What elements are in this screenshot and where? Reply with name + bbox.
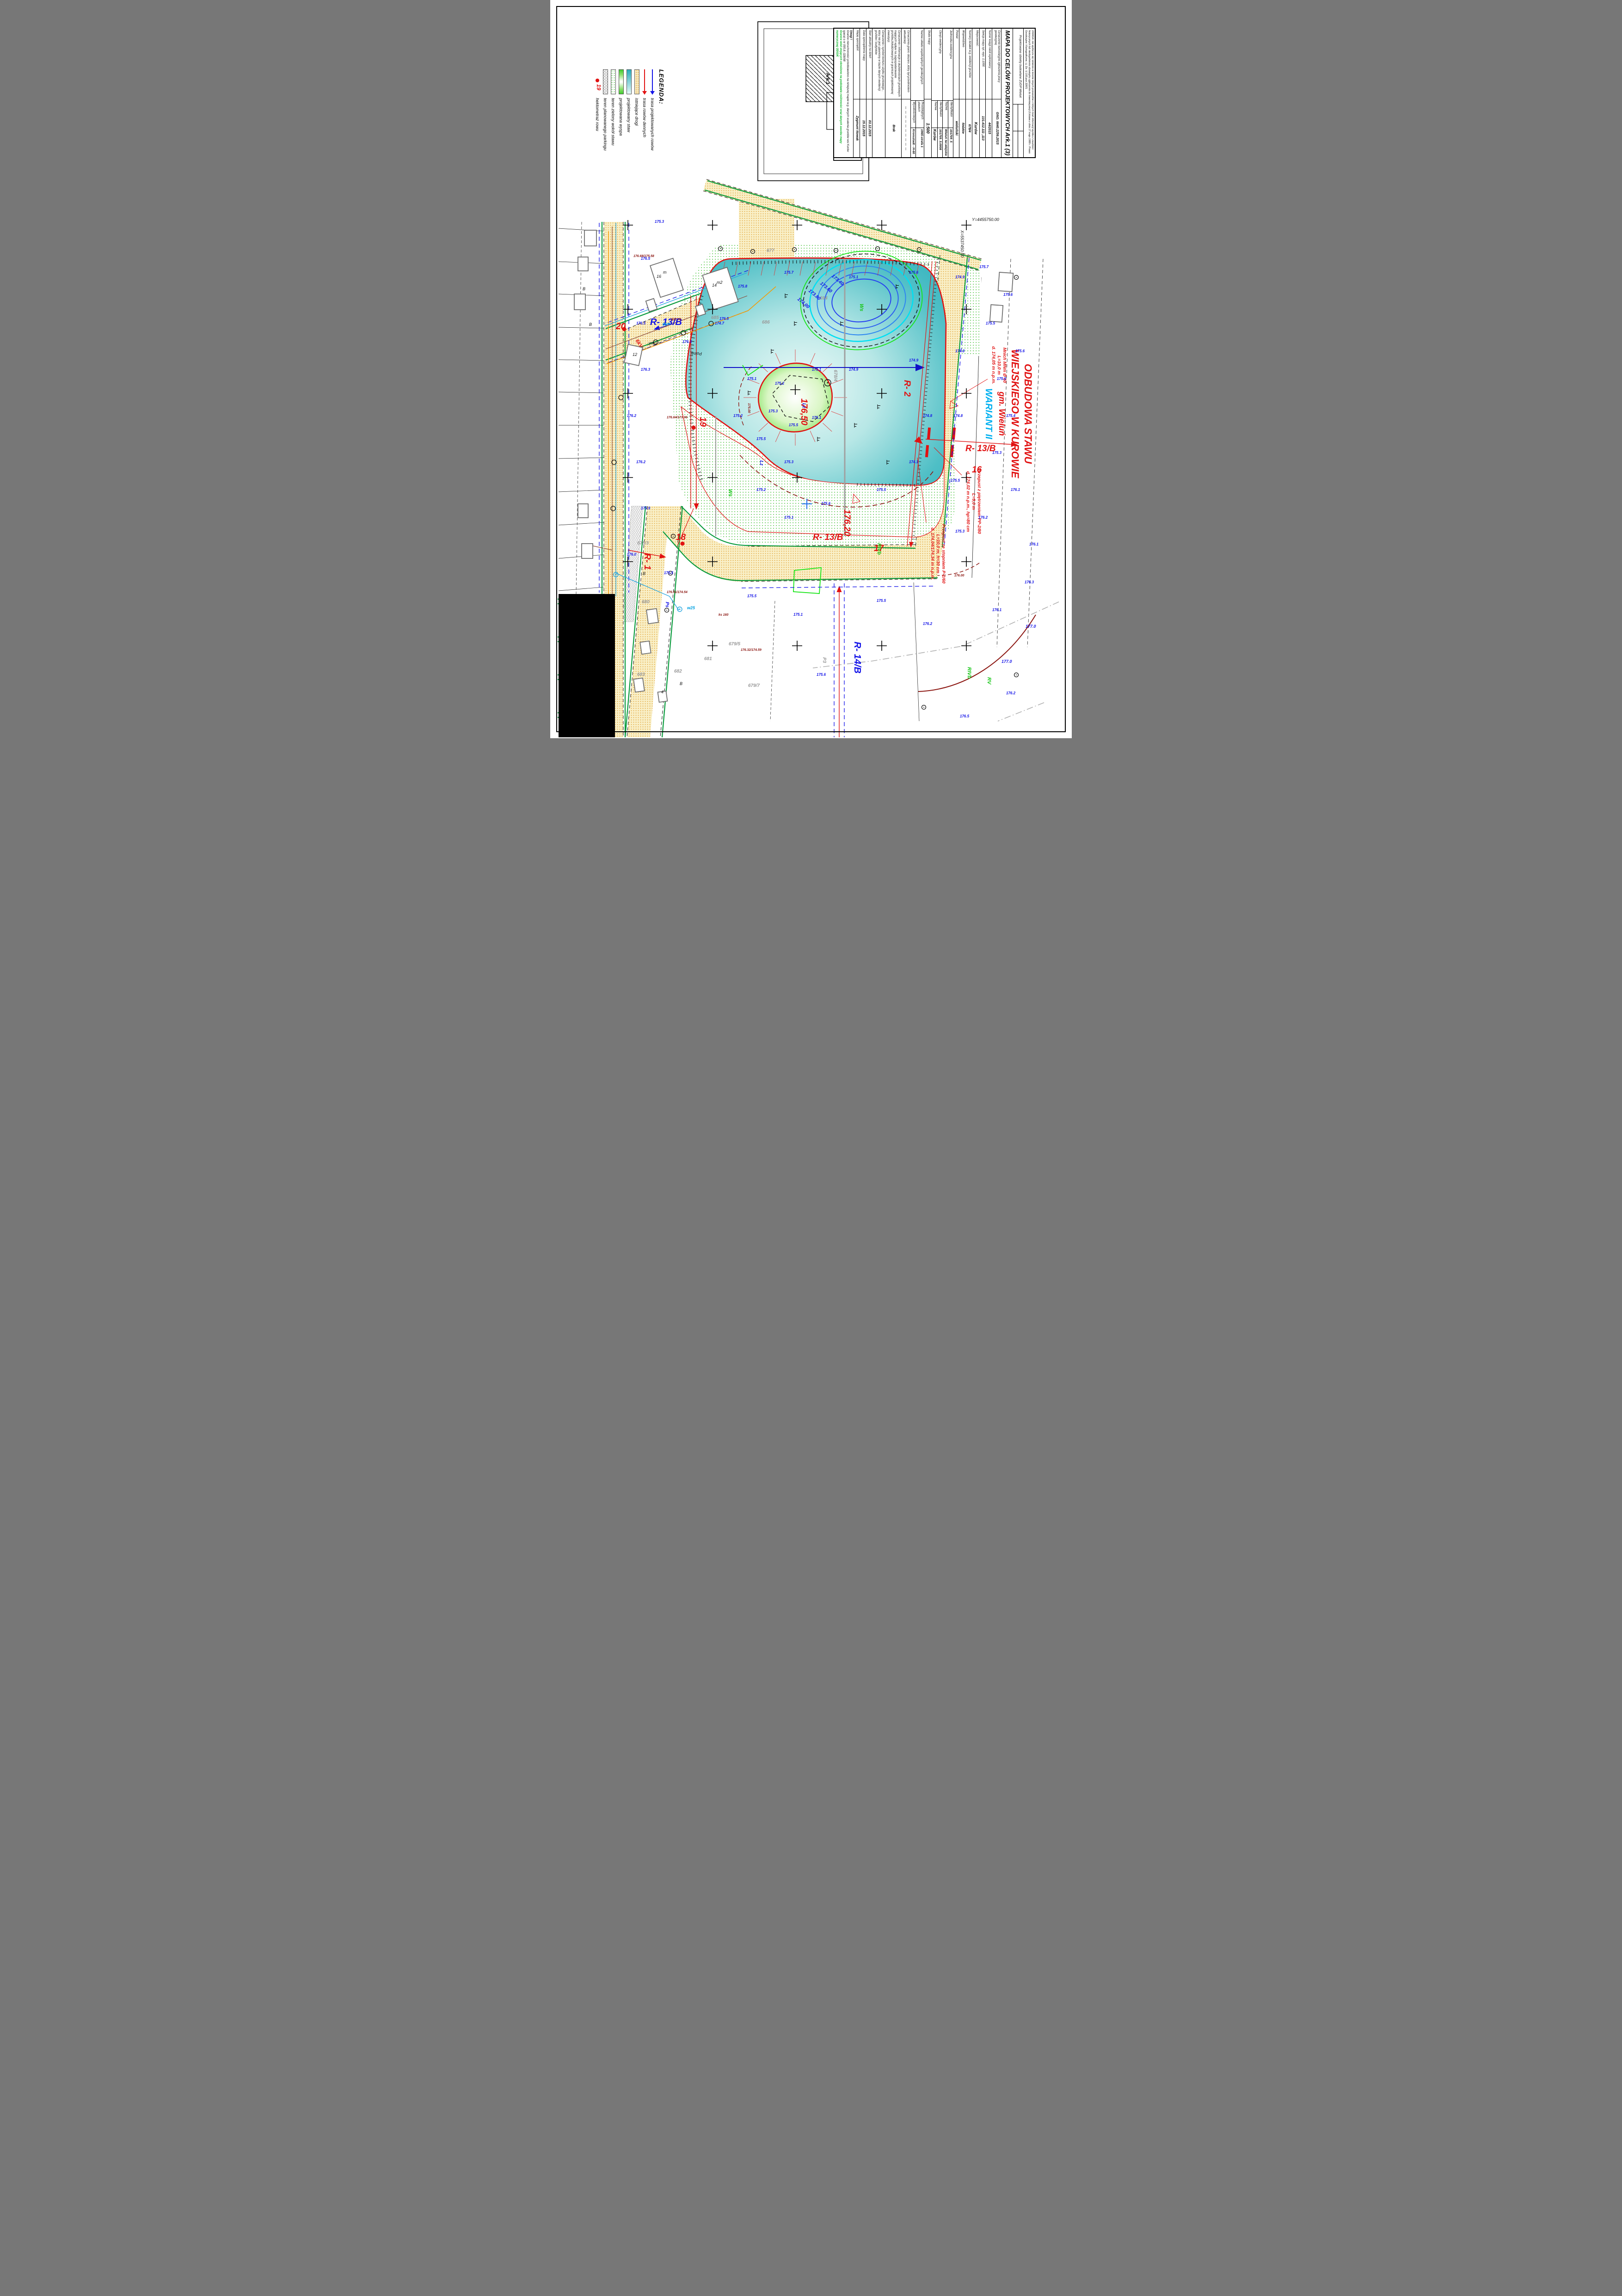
field-label: Stan aktualny na dzień <box>866 29 872 99</box>
field-value: 44/2015 <box>986 99 992 157</box>
map-label: B <box>583 287 585 291</box>
spot-elevation: 175.2 <box>775 381 785 386</box>
map-label: 176,20 <box>842 509 852 537</box>
map-label: 18 <box>676 533 686 542</box>
redacted-area <box>559 594 615 737</box>
map-label: B <box>643 571 645 576</box>
spot-elevation: 175.3 <box>655 220 664 224</box>
field-value: wieluński <box>953 99 959 157</box>
spot-elevation: 176.5 <box>960 714 970 718</box>
map-label: 16 <box>657 274 661 279</box>
spot-elevation: 174.8 <box>955 349 965 353</box>
field-label: Numer księgi robót wykonawcy <box>986 29 992 99</box>
field-value: 678/4 <box>966 99 972 157</box>
field-label: Miejscowość: <box>972 29 979 99</box>
subval: 1965-strefa 1 <box>916 128 924 157</box>
map-label: 175.00 <box>747 403 750 413</box>
project-title-line1: ODBUDOWA STAWU <box>1022 364 1034 464</box>
spot-elevation: 175.5 <box>664 571 674 575</box>
map-label: 678/3 <box>637 541 649 546</box>
update-boundary-symbol <box>902 99 910 157</box>
spot-elevation: 175.5 <box>756 437 766 441</box>
field-value: 03.12.2015 <box>866 99 872 157</box>
subkey: Identyfikator <box>948 101 953 128</box>
tree-dot <box>836 250 836 251</box>
spot-elevation: 175.2 <box>756 488 766 492</box>
map-label: 177.0 <box>1026 624 1036 629</box>
legend-item-label: hektometraż rowu <box>596 98 600 131</box>
survey-grid-cross <box>623 388 633 398</box>
spot-elevation: 176.2 <box>627 414 637 418</box>
map-label: 176.00 <box>954 574 965 577</box>
map-label: w90 <box>663 322 670 326</box>
subkey: Identyfikator <box>938 101 942 128</box>
planned-objects-label: Projektowane obiekty budowlane ZUDP Wiel… <box>1013 29 1023 104</box>
map-label: 19 <box>698 417 707 427</box>
hektometer-dot <box>692 426 696 430</box>
map-label: RIVb <box>966 667 972 679</box>
tree-dot <box>752 251 753 252</box>
legend-symbol-parking-icon <box>603 69 608 94</box>
survey-grid-cross <box>623 220 633 230</box>
spot-elevation: 175.6 <box>817 673 826 677</box>
map-label: 685 <box>711 315 719 320</box>
map-label: 176.64/173.96 <box>667 416 688 419</box>
legend-symbol-hekto-icon: 19 <box>595 69 600 94</box>
field-value: GNO. 6640.2256.2015 <box>992 99 1001 157</box>
spot-elevation: 176.2 <box>636 460 646 464</box>
remarks-text: Granice nieruchomości przedstawiono na n… <box>842 30 849 152</box>
legend-symbol-roads-icon <box>634 69 639 94</box>
spot-elevation: 176.2 <box>978 515 988 520</box>
landscape-sheet: Ark.1 Ark.2 Ark.3 ODBUDOWA STAWU WIEJSKI… <box>550 0 1072 738</box>
spot-elevation: 175.6 <box>1015 349 1025 353</box>
field-label: Oznaczenia granic obszaru ,który był prz… <box>902 29 910 99</box>
spot-elevation: 176.3 <box>641 367 651 372</box>
map-label: R- 14/B <box>852 642 862 673</box>
subval: Wieluń ter.wiejskie <box>943 128 948 157</box>
tree-dot <box>666 610 667 611</box>
legend-item-label: teren planowanego parkingu <box>603 98 608 151</box>
spot-elevation: 175.5 <box>986 321 995 325</box>
spot-elevation: 175.3 <box>768 409 778 413</box>
tree-dot <box>720 248 721 249</box>
field-subtable: Identyfikator101709_5 NazwaWieluń ter.wi… <box>943 100 953 157</box>
field-value: 1:500 <box>924 99 931 157</box>
map-label: 177.0 <box>1001 659 1012 664</box>
survey-grid-cross <box>961 557 971 567</box>
map-label: m2 <box>717 280 723 285</box>
legend: LEGENDA: trasa projektowanych rowówtrasa… <box>594 69 665 204</box>
field-subtable: Prostokątnych płaskich1965-strefa 1 Wyso… <box>911 100 924 157</box>
spot-elevation: 175.5 <box>997 377 1007 381</box>
map-label: 680 <box>642 600 650 605</box>
legend-item-label: teren zielony wokół stawu <box>611 98 616 146</box>
map-label: 4 <box>661 690 664 694</box>
subval: 101709_5.0008 <box>938 128 942 157</box>
map-label: 176.51/174.54 <box>667 591 688 594</box>
map-label: 176,50 <box>799 398 809 426</box>
map-label: 12 <box>633 352 637 357</box>
legend-symbol-pond-icon <box>627 69 632 94</box>
spot-elevation: 175.5 <box>877 599 886 603</box>
map-label: 679/5 <box>729 642 740 647</box>
field-value: 131.412.111 ,113 <box>980 99 986 157</box>
subkey: Nazwa <box>943 101 948 128</box>
tree-dot <box>673 536 674 537</box>
map-label: 681 <box>704 656 712 661</box>
map-label: 16 <box>972 465 982 475</box>
map-label: 677 <box>767 248 774 253</box>
spot-elevation: 175.7 <box>784 270 794 275</box>
spot-elevation: 174.1 <box>909 460 919 464</box>
map-label: Ws <box>727 489 733 497</box>
legend-item: projektowana wyspa <box>617 69 625 204</box>
remarks-green-text: Granice wód stojących określono na podst… <box>836 30 842 143</box>
map-label: R- 13/B <box>965 444 996 453</box>
field-label: Sekcja mapy syt.-wys. 1:1000 <box>980 29 986 99</box>
spot-elevation: 175.1 <box>812 367 822 372</box>
legend-item-label: projektowana wyspa <box>619 98 624 136</box>
field-label: Mapę sporządził: <box>854 29 860 99</box>
map-label: 679/7 <box>748 683 760 688</box>
sheet-ark1-label: Ark.1 <box>825 72 830 84</box>
map-label: Lz <box>759 460 764 465</box>
spot-elevation: 175.6 <box>821 502 831 506</box>
map-label: B <box>589 322 592 327</box>
spot-elevation: 176.1 <box>1029 542 1039 546</box>
subval: Kronsztadt - H-60 <box>911 128 915 157</box>
spot-elevation: 175.4 <box>1006 414 1016 418</box>
map-title: MAPA DO CELÓW PROJEKTOWYCH Ark.1 (3) <box>1001 29 1013 157</box>
tree-dot <box>794 249 795 250</box>
legend-item: istniejące drogi <box>633 69 641 204</box>
tree-dot <box>877 248 878 249</box>
spot-elevation: 175.2 <box>733 414 743 418</box>
map-label: P3 <box>822 657 827 663</box>
planned-objects-grid <box>1013 104 1023 157</box>
spot-elevation: 175.1 <box>747 377 757 381</box>
hektometer-number: 19 <box>596 84 602 90</box>
map-label: Lz <box>801 403 806 408</box>
spot-elevation: 175.5 <box>951 478 960 483</box>
spot-elevation: 175.7 <box>979 265 989 269</box>
legend-item: teren zielony wokół stawu <box>609 69 617 204</box>
field-value: Brak <box>885 99 901 157</box>
map-label: ks 160 <box>719 613 729 617</box>
field-label: Oznaczenie kancelaryjne zgłoszenia pracy… <box>992 29 1001 99</box>
spot-elevation: 176.0 <box>627 552 637 557</box>
legend-item: projektowany staw <box>625 69 633 204</box>
spot-elevation: 175.9 <box>641 506 651 510</box>
spot-elevation: 176.1 <box>1011 488 1020 492</box>
survey-grid-cross <box>623 304 633 314</box>
map-label: 176.68/175.58 <box>633 255 654 258</box>
survey-grid-cross <box>623 472 633 483</box>
spot-elevation: 176.5 <box>719 317 729 321</box>
survey-grid-cross <box>707 641 718 651</box>
spot-elevation: 175.3 <box>955 529 965 533</box>
subkey: Nazwa <box>932 101 937 128</box>
legend-item: teren planowanego parkingu <box>602 69 609 204</box>
map-label: m <box>663 270 667 275</box>
map-label: Ps <box>664 602 670 608</box>
spot-elevation: 175.8 <box>738 284 748 288</box>
map-label: w25 <box>687 606 695 610</box>
field-label: Obręb ewidencyjny <box>932 29 942 100</box>
grid-coordinate-label: X=5537450.00 <box>960 230 965 257</box>
legend-symbol-island-icon <box>619 69 624 94</box>
spot-elevation: 174.8 <box>923 414 933 418</box>
spot-elevation: 175.5 <box>747 594 757 598</box>
spot-elevation: 176.3 <box>1025 580 1034 584</box>
map-label: R- 1 <box>642 553 652 570</box>
spot-elevation: 176.5 <box>636 321 646 325</box>
field-label: Data sporządzenia mapy <box>860 29 866 99</box>
remarks: Uwagi ! Granice nieruchomości przedstawi… <box>834 29 854 157</box>
map-label: RV <box>986 677 992 685</box>
field-subtable: Identyfikator101709_5.0008 NazwaKurów <box>932 100 942 157</box>
spot-elevation: 176.3 <box>682 340 692 344</box>
map-label: Ws <box>859 304 864 312</box>
field-label: Oznaczenie i symbol konturu użytku grunt… <box>873 29 885 99</box>
spot-elevation: 175.1 <box>793 612 803 617</box>
legend-item-label: trasa projektowanych rowów <box>651 98 655 151</box>
tree-dot <box>1016 277 1017 278</box>
spot-elevation: 175.3 <box>784 460 794 464</box>
map-label: 14 <box>712 283 717 288</box>
spot-elevation: 175.1 <box>849 275 859 279</box>
legend-symbol-arrow-blue-icon <box>650 69 655 94</box>
spot-elevation: 174.7 <box>715 321 725 325</box>
tree-dot <box>923 707 924 708</box>
legend-item-label: istniejące drogi <box>635 98 639 126</box>
field-value: Kurów <box>972 99 979 157</box>
field-value: łódzkie <box>960 99 966 157</box>
title-block: UWAGA: nie wyklucza się istnienia w tere… <box>833 28 1036 158</box>
spot-elevation: 175.5 <box>877 488 886 492</box>
legend-symbol-green-icon <box>611 69 616 94</box>
map-label: 683 <box>637 672 645 677</box>
survey-grid-cross <box>707 220 718 230</box>
survey-grid-cross <box>877 641 887 651</box>
field-value: 15.12.2015 <box>860 99 866 157</box>
project-variant: WARIANT II <box>983 388 994 439</box>
tree-dot <box>1016 674 1017 675</box>
field-label: Województwo <box>960 29 966 99</box>
legend-item-label: trasa rowów dennych <box>643 98 647 137</box>
spot-elevation: 174.9 <box>849 367 859 372</box>
legend-item-label: projektowany staw <box>627 98 632 132</box>
spot-elevation: 176.1 <box>992 608 1002 612</box>
field-value <box>873 99 885 157</box>
subval: Kurów <box>932 128 937 157</box>
map-label: 686 <box>762 320 770 325</box>
spot-elevation: 174.9 <box>955 275 965 279</box>
map-label: RIVb <box>876 543 882 555</box>
field-label: Numery działek w.g. ewidencji gruntów <box>966 29 972 99</box>
title-block-disclaimer: UWAGA: nie wyklucza się istnienia w tere… <box>1024 29 1035 157</box>
spot-elevation: 175.6 <box>909 270 919 275</box>
map-label: R- 13/B <box>813 533 843 542</box>
spot-elevation: 176.2 <box>923 622 933 626</box>
map-label: 176.32/174.59 <box>741 649 762 652</box>
field-label: Nazwa układu współrzędnych geodezyjnych <box>911 29 924 100</box>
map-label: B <box>680 681 682 686</box>
subval: 101709_5 <box>948 128 953 157</box>
tree-dot <box>919 249 920 250</box>
field-label: Oznaczenie i informacje o służebnościach… <box>885 29 901 99</box>
subkey: Prostokątnych płaskich <box>916 101 924 128</box>
survey-grid-cross <box>877 220 887 230</box>
legend-item: trasa rowów dennych <box>641 69 649 204</box>
spot-elevation: 175.5 <box>789 423 799 427</box>
map-label: j.asf. <box>648 341 657 346</box>
field-label: Skala mapy <box>924 29 931 99</box>
legend-header: LEGENDA: <box>658 69 665 204</box>
field-value: Zygmunt Nowak <box>854 99 860 157</box>
map-label: R- 2 <box>902 380 912 397</box>
legend-items: trasa projektowanych rowówtrasa rowów de… <box>594 69 657 204</box>
field-label: Jednostka ewidencyjna <box>943 29 953 100</box>
field-label: Powiat <box>953 29 959 99</box>
map-label: 20 <box>615 322 626 331</box>
hektometer-dot-icon <box>596 79 599 82</box>
map-label: ks 200 <box>671 317 681 320</box>
map-label: Polna <box>691 351 702 356</box>
subkey: Wysokościowych <box>911 101 915 128</box>
survey-grid-cross <box>792 641 802 651</box>
spot-elevation: 175.1 <box>812 416 822 420</box>
spot-elevation: 175.6 <box>1003 293 1013 297</box>
project-title-line3: gm. Wieluń <box>997 391 1007 436</box>
spot-elevation: 174.8 <box>953 414 963 418</box>
map-label: 682 <box>674 669 682 674</box>
spot-elevation: 175.1 <box>784 515 794 520</box>
spot-elevation: 174.9 <box>909 358 919 362</box>
legend-symbol-arrow-red-icon <box>642 69 647 94</box>
remarks-head: Uwagi ! <box>849 30 852 40</box>
map-sheet-page: Ark.1 Ark.2 Ark.3 ODBUDOWA STAWU WIEJSKI… <box>550 0 1072 738</box>
survey-grid-cross <box>961 220 971 230</box>
grid-coordinate-label: Y=4455750.00 <box>972 217 999 222</box>
spot-elevation: 176.2 <box>1006 691 1016 695</box>
legend-item: 19hektometraż rowu <box>594 69 602 204</box>
legend-item: trasa projektowanych rowów <box>649 69 657 204</box>
map-label: 678/4 <box>833 370 838 381</box>
